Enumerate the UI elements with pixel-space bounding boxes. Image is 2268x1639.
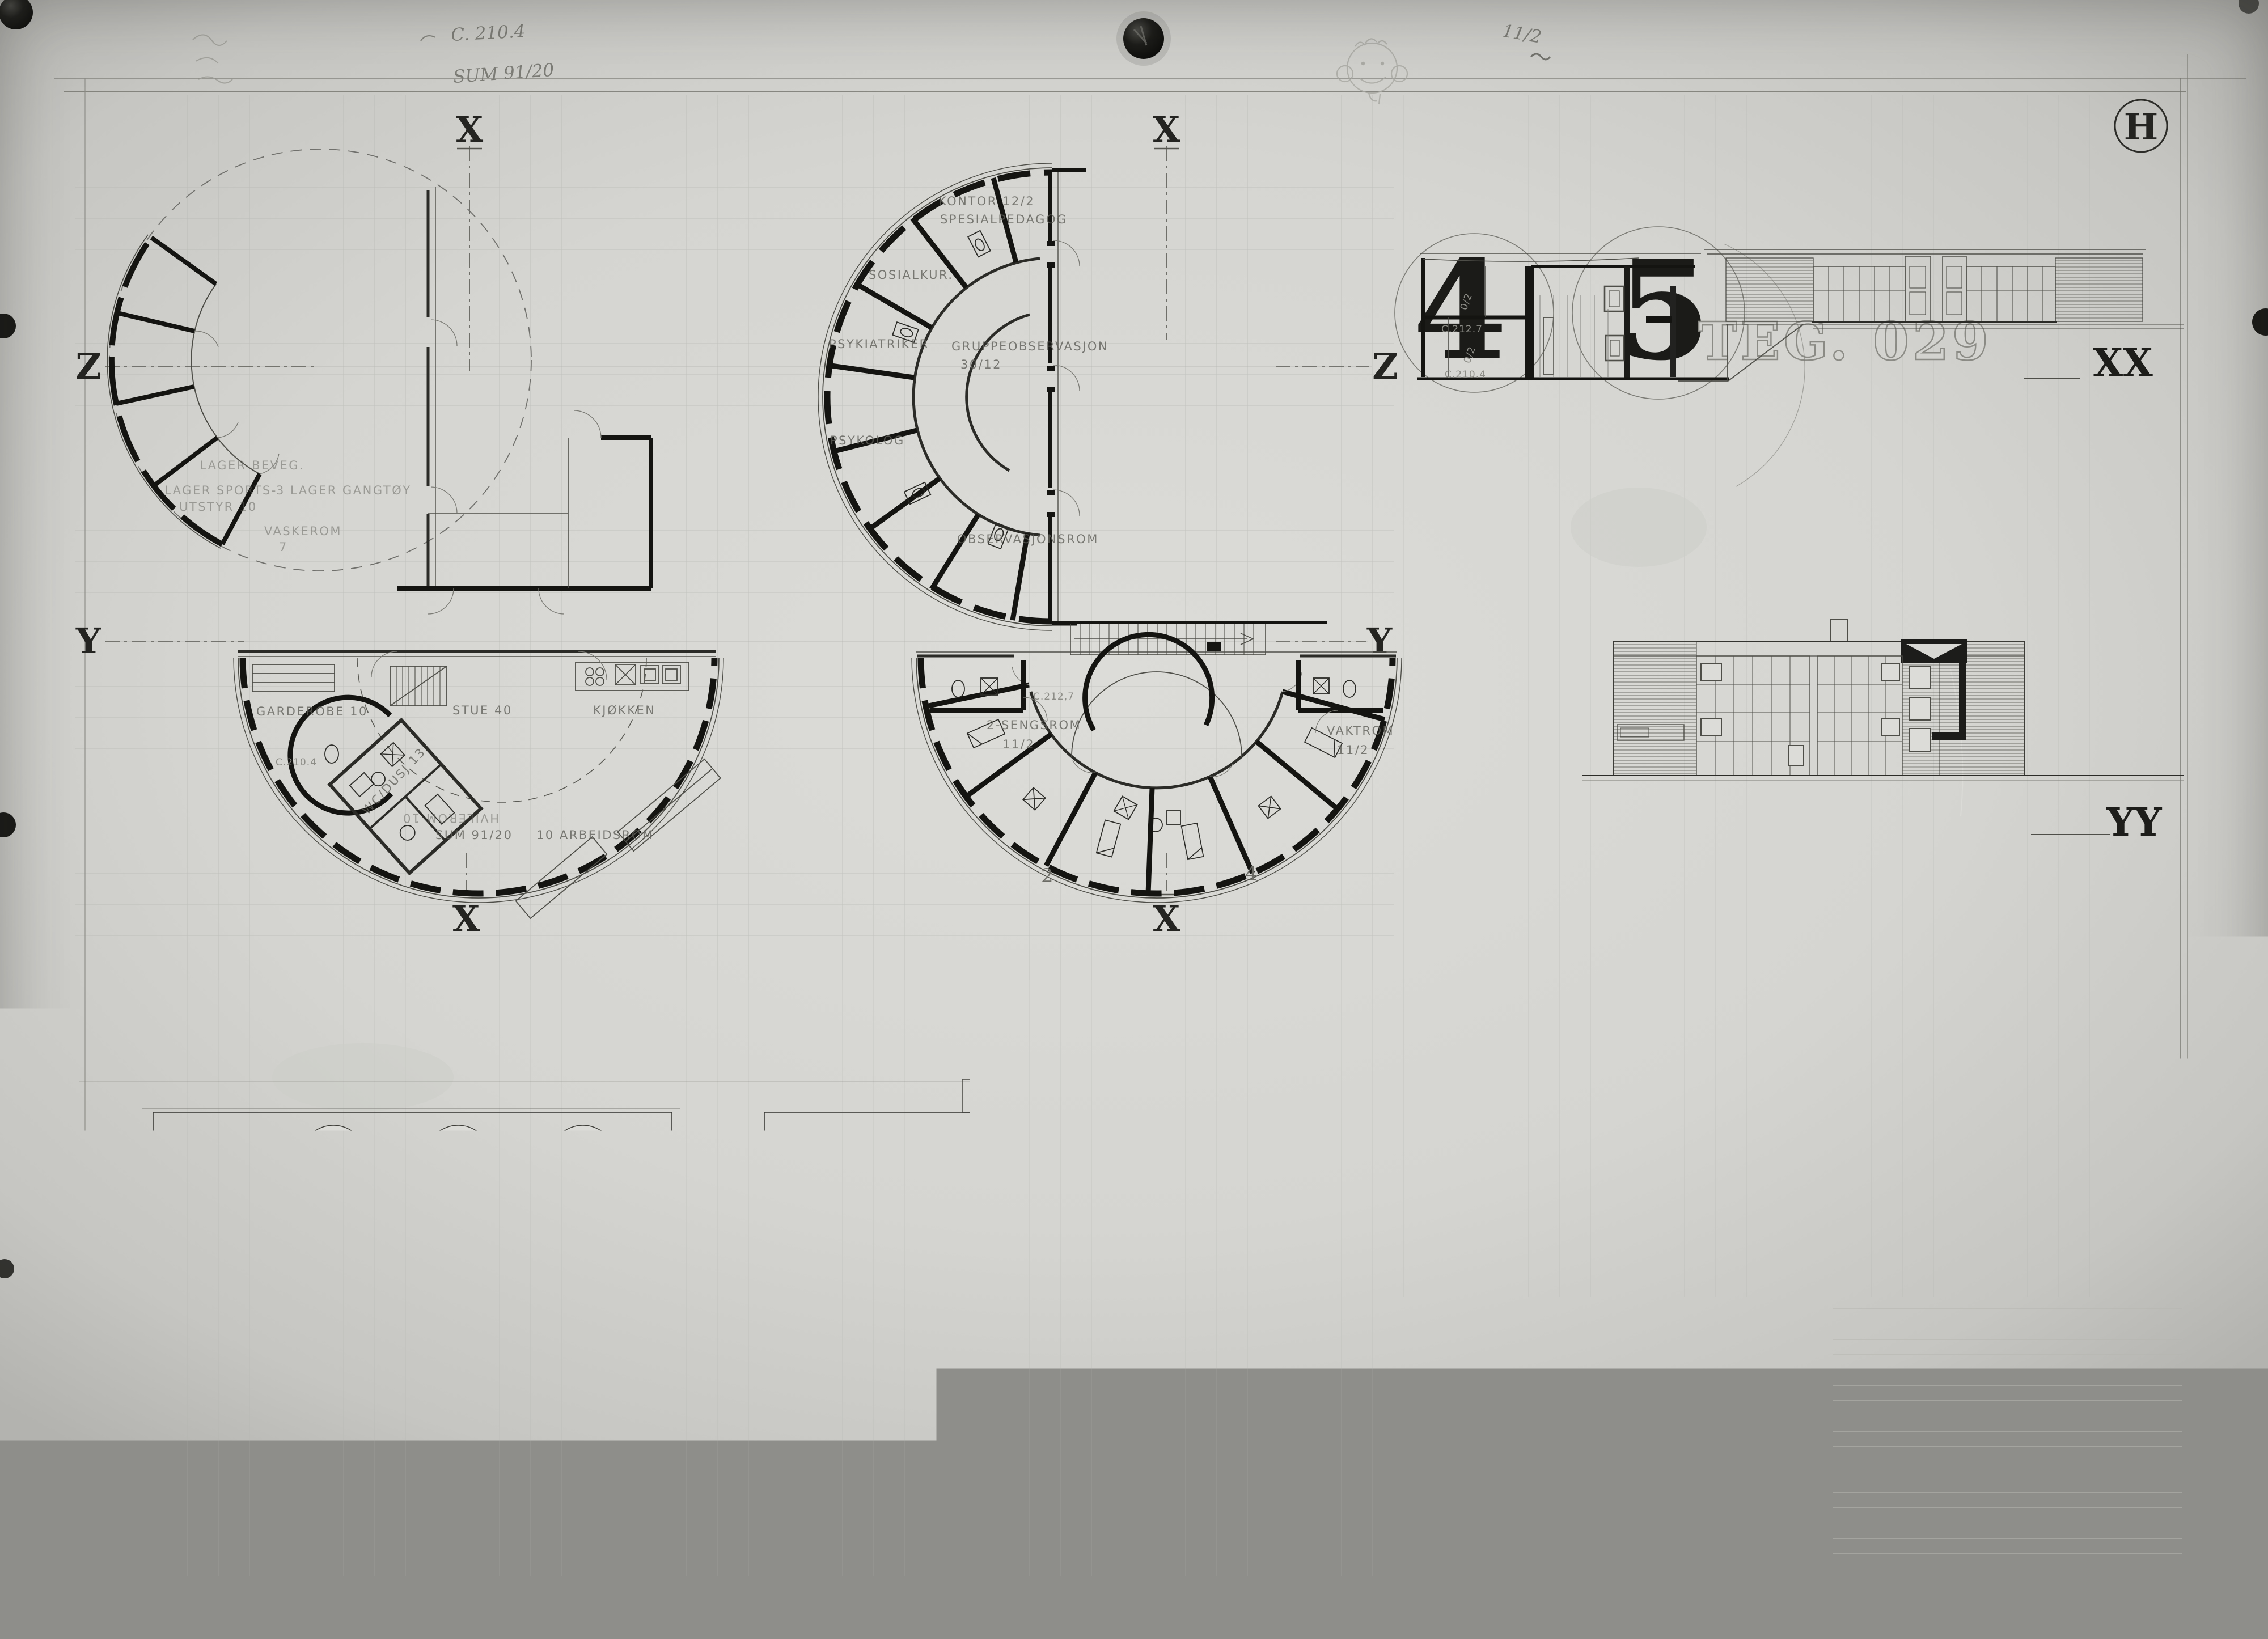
axis-z-left: Z [75, 346, 101, 387]
room-label: 3 LAGER GANGTØY [276, 484, 412, 497]
room-label: 30/12 [960, 358, 1002, 371]
room-label: VAKTROM [1327, 724, 1394, 738]
stamp-5: 5 [1617, 231, 1712, 391]
section-mark-xx: XX [2093, 341, 2153, 386]
drawing-number: SK 024 [1831, 1316, 2201, 1416]
project-line: OBSERVASJONSAVD. MED INTERNAT [1837, 1472, 2098, 1486]
room-label: VASKEROM [264, 524, 342, 538]
project-line: PLANER SNITT FASADER MÅL 1:100 [1837, 1496, 2106, 1511]
room-label: STUE 40 [452, 704, 513, 717]
room-number: 4 [1245, 862, 1258, 885]
project-line: SKÅDALEN OFF. SKOLE FOR DØVE [1837, 1446, 2089, 1462]
axis-x-top-mid: X [1153, 109, 1180, 150]
room-label: SOSIALKUR. [869, 268, 954, 282]
facade-north-label: FASADE MOT NORD [750, 1315, 962, 1332]
sheet-letter-h: H [2124, 106, 2158, 149]
section-note: C.210.4 [1445, 369, 1486, 380]
architect-credit: SVERRE FEHN ARK. MNAL T.444476 [1837, 1570, 2106, 1585]
room-label: SPESIALPEDAGOG [940, 213, 1068, 226]
axis-z-right: Z [1372, 346, 1398, 387]
room-label: UTSTYR 10 [179, 500, 257, 514]
room-label: 2-SENGSROM [987, 718, 1081, 732]
drawing-sheet: X X X X Z Z Y Y [0, 0, 2268, 1639]
handwritten-level: C. 210.4 [451, 21, 526, 45]
axis-x-bottom-left: X [452, 898, 480, 939]
scanned-architectural-drawing: X X X X Z Z Y Y [0, 0, 2268, 1639]
room-label: LAGER BEVEG. [200, 459, 304, 472]
axis-x-bottom-mid: X [1153, 898, 1180, 939]
room-label: KJØKKEN [593, 704, 656, 717]
pin-right-edge [2252, 308, 2268, 336]
pin-left-upper [0, 314, 16, 338]
facade-west-label: FASADE MOT VEST [120, 1312, 326, 1329]
room-label: PSYKOLOG [830, 434, 905, 447]
room-label: PSYKIATRIKER [829, 337, 929, 351]
room-label: 7 [279, 540, 288, 554]
pin-top-left [0, 0, 33, 29]
pin-left-bottom [0, 1259, 14, 1278]
handwritten-notes: C. 210.4 SUM 91/20 11/2 [193, 20, 1550, 87]
room-number: 2 [1041, 865, 1053, 887]
room-label: KONTOR 12/2 [938, 194, 1035, 208]
section-note: C.212.7 [1441, 324, 1483, 335]
level-note: C.212,7 [1033, 691, 1074, 702]
pin-bottom-center [1229, 1596, 1260, 1627]
pin-left-lower [0, 812, 16, 837]
smiley-doodle [1337, 39, 1407, 104]
axis-y-left: Y [75, 620, 101, 662]
room-label: 11/2 [1002, 738, 1035, 751]
section-mark-yy: YY [2106, 800, 2163, 845]
axis-x-top-left: X [456, 109, 484, 150]
pin-top-right-corner [2239, 0, 2259, 14]
room-label: GARDEROBE 10 [256, 705, 368, 718]
room-label: GRUPPEOBSERVASJON [951, 340, 1108, 353]
room-label: OBSERVASJONSROM [957, 532, 1099, 546]
room-label: 11/2 [1337, 743, 1369, 757]
pin-bottom-left-mark [481, 1627, 497, 1639]
handwritten-sum: SUM 91/20 [452, 60, 555, 87]
room-label: 10 ARBEIDSROM [536, 828, 654, 842]
handwritten-fraction: 11/2 [1501, 20, 1543, 48]
room-label: SUM 91/20 [435, 828, 513, 842]
level-note: C.210.4 [276, 757, 317, 768]
room-label: HVILEROM 10 [402, 811, 499, 825]
room-label: LAGER SPORTS- [164, 484, 277, 497]
stamp-4: 4 [1413, 231, 1508, 391]
